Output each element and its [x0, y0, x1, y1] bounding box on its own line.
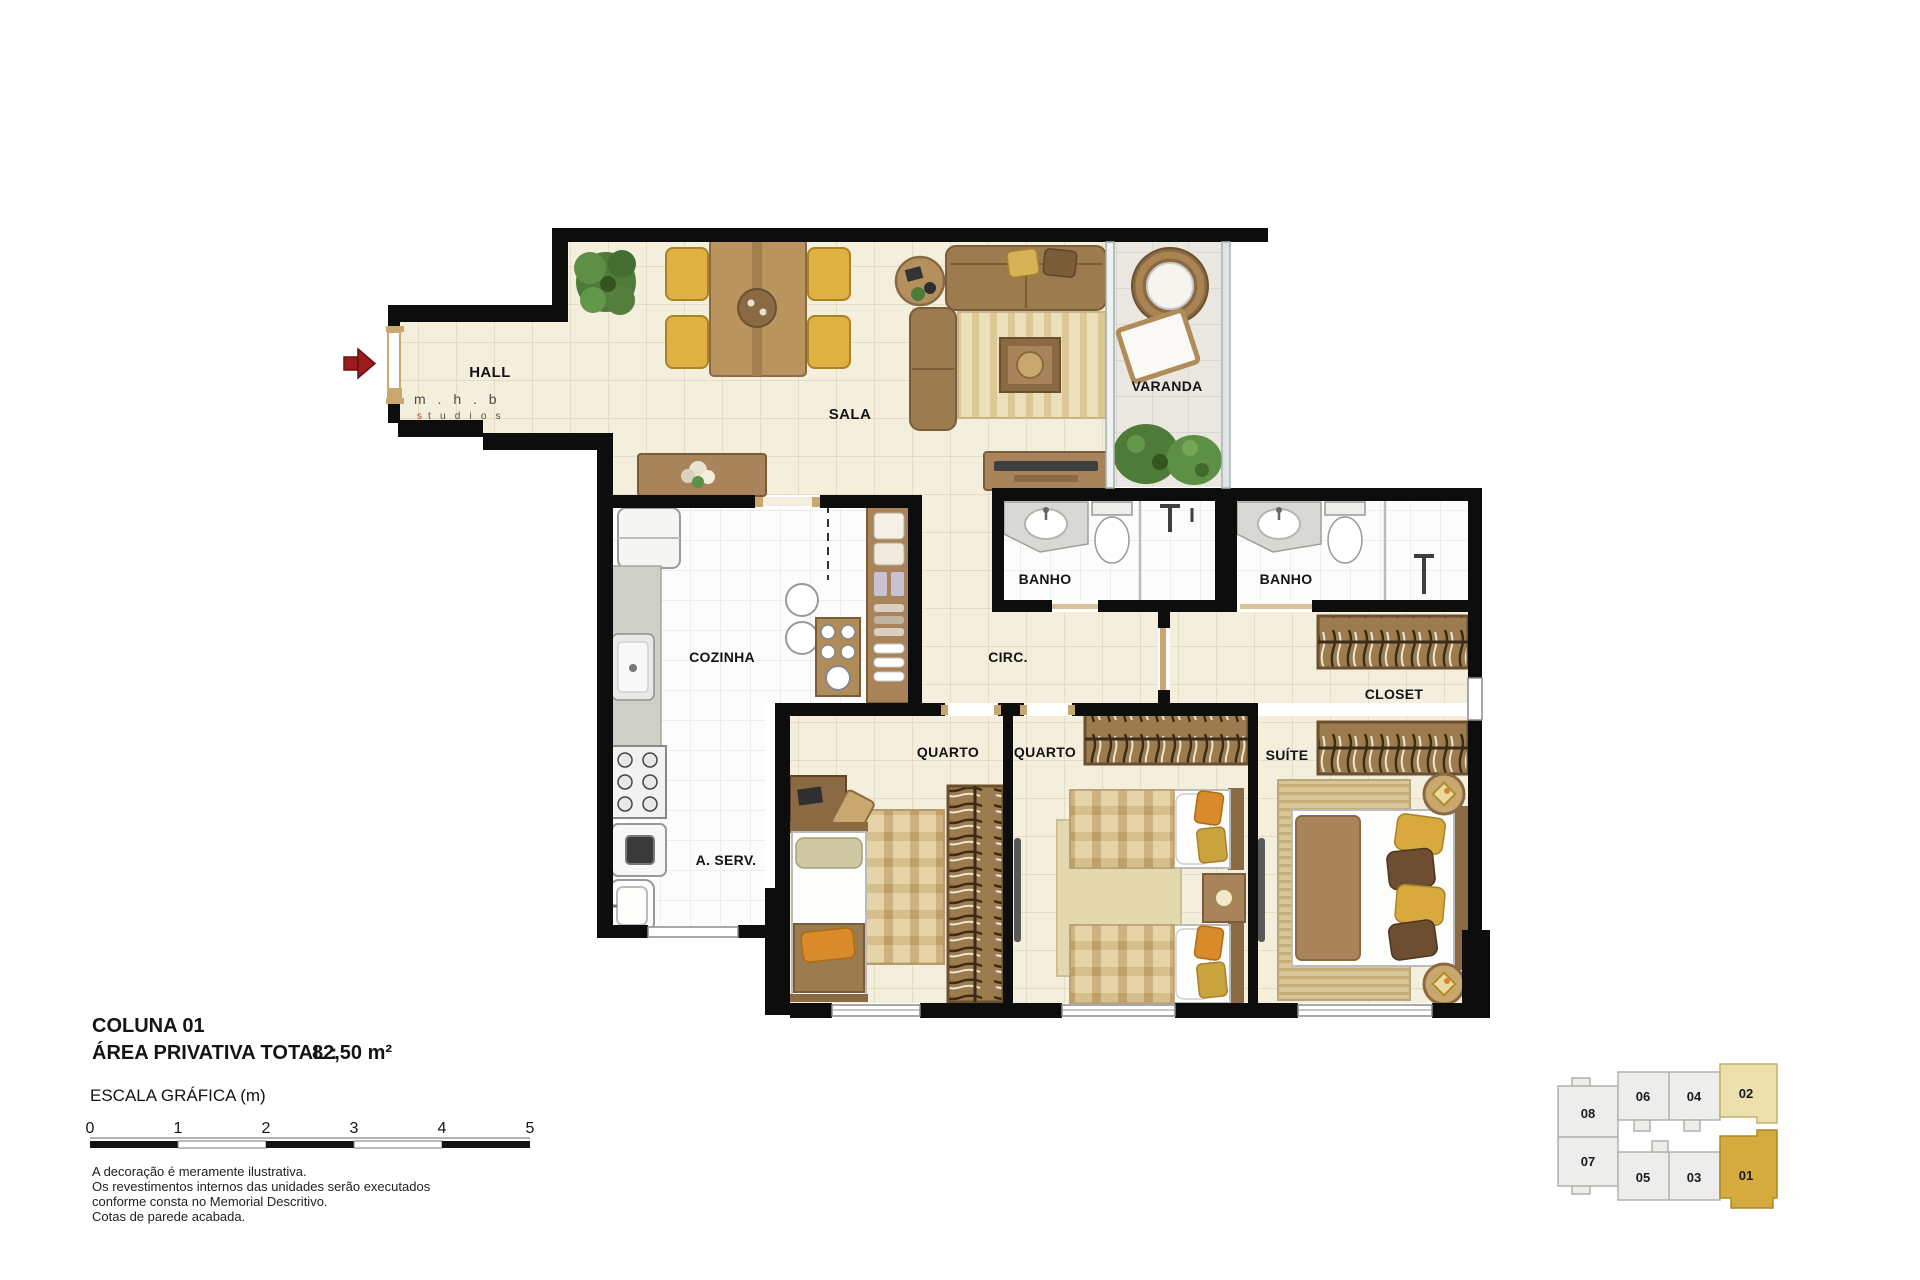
varanda-label: VARANDA: [1131, 378, 1202, 394]
sala-plant: [574, 250, 636, 315]
kitchen-plate-2: [786, 622, 818, 654]
floorplan-page: HALL SALA VARANDA BANHO BANHO COZINHA CI…: [0, 0, 1920, 1280]
disclaimer-line-1: A decoração é meramente ilustrativa.: [92, 1164, 307, 1179]
circ-label: CIRC.: [988, 649, 1028, 665]
scale-tick-2: 2: [262, 1120, 271, 1137]
banho1-door: [1052, 604, 1098, 609]
washer: [612, 824, 666, 876]
disclaimer: A decoração é meramente ilustrativa. Os …: [92, 1164, 431, 1224]
area-value: 82,50 m²: [312, 1042, 392, 1064]
varanda-glass-door: [1106, 242, 1114, 488]
suite-door: [1160, 628, 1166, 690]
sala-label: SALA: [829, 406, 871, 423]
entrance-arrow-icon: [344, 349, 375, 378]
keyplan-unit-05-label: 05: [1636, 1170, 1650, 1185]
pantry-cabinet: [867, 505, 911, 703]
closet-label: CLOSET: [1365, 686, 1424, 702]
quarto2-bed-a: [1070, 788, 1244, 870]
disclaimer-line-3: conforme consta no Memorial Descritivo.: [92, 1194, 328, 1209]
closet-rack-bottom: [1318, 722, 1468, 774]
logo-line2-first: s: [417, 411, 425, 422]
keyplan-notch: [1684, 1120, 1700, 1131]
stove: [610, 746, 666, 818]
mhb-studios-logo: m . h . b s t u d i o s: [414, 391, 504, 422]
keyplan-left-block: [1558, 1086, 1618, 1186]
quarto2-rack: [1085, 714, 1248, 764]
tv-console: [984, 452, 1108, 490]
scale-title: ESCALA GRÁFICA (m): [90, 1086, 266, 1105]
keyplan-unit-03-label: 03: [1687, 1170, 1701, 1185]
aserv-label: A. SERV.: [696, 852, 757, 868]
column-title: COLUNA 01: [92, 1015, 205, 1037]
cozinha-label: COZINHA: [689, 649, 755, 665]
quarto2-nightstand: [1203, 874, 1245, 922]
coffee-table: [1000, 338, 1060, 392]
scale-tick-5: 5: [526, 1120, 535, 1137]
keyplan-unit-04-label: 04: [1687, 1089, 1702, 1104]
quarto1-label: QUARTO: [917, 744, 979, 760]
quarto2-label: QUARTO: [1014, 744, 1076, 760]
closet-rack-top: [1318, 616, 1468, 668]
quarto2-bed-b: [1070, 923, 1244, 1005]
kitchen-sink: [612, 634, 654, 700]
suite-bed: [1292, 806, 1468, 970]
area-label: ÁREA PRIVATIVA TOTAL :: [92, 1041, 337, 1064]
sideboard: [638, 454, 766, 496]
floorplan-drawing: HALL SALA VARANDA BANHO BANHO COZINHA CI…: [0, 0, 1920, 1280]
scale-tick-1: 1: [174, 1120, 183, 1137]
scale-tick-4: 4: [438, 1120, 447, 1137]
suite-side-table-bottom: [1424, 964, 1464, 1004]
scale-tick-0: 0: [86, 1120, 95, 1137]
side-table-round: [896, 257, 944, 305]
disclaimer-line-2: Os revestimentos internos das unidades s…: [92, 1179, 431, 1194]
kitchen-door-gap: [763, 497, 812, 506]
keyplan-unit-01-label: 01: [1739, 1168, 1753, 1183]
scale-bar: 0 1 2 3 4 5: [86, 1120, 535, 1148]
hall-label: HALL: [469, 364, 511, 381]
door-leaf-quarto2: [1014, 838, 1021, 942]
fridge: [618, 508, 680, 568]
cooktop-module: [816, 618, 860, 696]
banho1-label: BANHO: [1019, 571, 1072, 587]
logo-line2-rest: t u d i o s: [428, 411, 504, 422]
disclaimer-line-4: Cotas de parede acabada.: [92, 1209, 245, 1224]
exterior-patch: [561, 450, 597, 500]
keyplan-unit-02-label: 02: [1739, 1086, 1753, 1101]
quarto1-bed: [790, 822, 868, 1002]
banho2-door: [1240, 604, 1312, 609]
varanda-railing: [1222, 242, 1230, 488]
keyplan-notch: [1634, 1120, 1650, 1131]
kitchen-plate: [786, 584, 818, 616]
suite-label: SUÍTE: [1266, 747, 1309, 763]
logo-line1: m . h . b: [414, 391, 501, 407]
dining-table: [710, 240, 806, 376]
scale-tick-3: 3: [350, 1120, 359, 1137]
keyplan-unit-08-label: 08: [1581, 1106, 1595, 1121]
banho2-label: BANHO: [1260, 571, 1313, 587]
suite-side-table-top: [1424, 774, 1464, 814]
circ-floor: [922, 612, 1158, 703]
keyplan: 08 06 04 02 07 05 03 01: [1558, 1064, 1777, 1208]
keyplan-unit-07-label: 07: [1581, 1154, 1595, 1169]
quarto1-wardrobe: [948, 786, 1003, 1002]
keyplan-unit-06-label: 06: [1636, 1089, 1650, 1104]
keyplan-notch: [1652, 1141, 1668, 1152]
door-leaf-suite-wall: [1258, 838, 1265, 942]
